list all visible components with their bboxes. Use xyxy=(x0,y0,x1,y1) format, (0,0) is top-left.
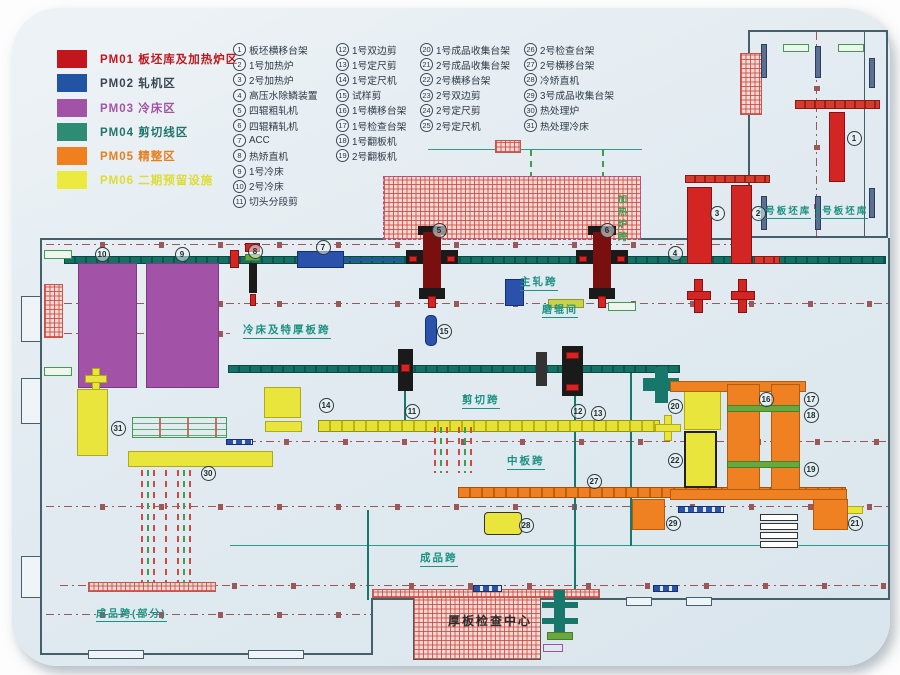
furnace-pusher xyxy=(687,291,711,300)
rail-dash xyxy=(147,470,149,582)
machine-part xyxy=(566,352,579,359)
hot-leveler-part xyxy=(249,263,257,293)
elevation-label-box xyxy=(783,44,809,52)
roller-table-hatched xyxy=(88,582,216,592)
rail-dash xyxy=(458,427,460,473)
lifter-base xyxy=(547,632,573,640)
equipment-marker-6: 6 xyxy=(600,223,615,238)
bay-label: 厚板检查中心 xyxy=(448,615,532,628)
equipment-marker-18: 18 xyxy=(804,408,819,423)
equipment-marker-10: 10 xyxy=(95,247,110,262)
equipment-marker-13: 13 xyxy=(591,406,606,421)
elevation-label-box xyxy=(44,250,72,259)
slab-transfer-rack xyxy=(829,112,845,182)
equipment-marker-20: 20 xyxy=(668,399,683,414)
machine-part xyxy=(617,256,625,262)
rail-dash xyxy=(440,427,442,473)
dashed-line xyxy=(530,150,532,178)
bay-label: 磨辊间 xyxy=(542,305,578,318)
machine-part xyxy=(423,232,441,294)
equipment-marker-28: 28 xyxy=(519,518,534,533)
roller-segment xyxy=(226,439,253,445)
machine-part xyxy=(401,364,410,372)
scanned-page: PM01 板坯库及加热炉区PM02 轧机区PM03 冷床区PM04 剪切线区PM… xyxy=(0,0,900,675)
bay-label: 剪切跨 xyxy=(462,395,500,409)
cooling-bed-1 xyxy=(146,263,219,388)
check-rack xyxy=(132,417,227,438)
roughing-mill-stand xyxy=(405,226,459,308)
rail-dash xyxy=(183,470,185,582)
slab-stack-area xyxy=(44,284,63,338)
equipment-marker-27: 27 xyxy=(587,474,602,489)
cold-leveler xyxy=(484,512,522,535)
equipment-marker-1: 1 xyxy=(847,131,862,146)
lifter-machine xyxy=(542,602,578,608)
heat-treat-furnace xyxy=(128,451,273,467)
bay-label: 冷床及特厚板跨 xyxy=(243,325,331,339)
product-collecting-rack-2 xyxy=(684,431,717,488)
equipment-marker-7: 7 xyxy=(316,240,331,255)
equipment-marker-11: 11 xyxy=(405,404,420,419)
lifter-machine xyxy=(542,618,578,624)
equipment-marker-19: 19 xyxy=(804,462,819,477)
inspection-rack-2 xyxy=(771,384,800,490)
hot-leveler-part xyxy=(250,294,256,306)
equipment-marker-14: 14 xyxy=(319,398,334,413)
cut-to-length-shear xyxy=(536,352,547,386)
transfer-cross-yellow xyxy=(85,375,107,383)
machine-part xyxy=(447,256,455,262)
door-notch xyxy=(686,597,712,606)
elevation-label-box xyxy=(838,44,864,52)
elevation-label-box xyxy=(44,367,72,376)
rail-dash xyxy=(470,427,472,473)
machine-part xyxy=(409,256,417,262)
marker-box xyxy=(543,644,563,652)
roller-segment xyxy=(473,585,502,592)
crane-column xyxy=(869,188,875,218)
centerline xyxy=(46,504,888,510)
rail-dash xyxy=(434,427,436,473)
plant-diagram: 冷床及特厚板跨主轧跨磨辊间加热炉跨2号板坯库1号板坯库剪切跨中板跨成品跨成品跨(… xyxy=(0,0,900,675)
bay-label: 1号板坯库 xyxy=(815,207,868,219)
annex-room xyxy=(21,296,41,342)
slab-stack-area xyxy=(495,140,521,153)
bay-label: 中板跨 xyxy=(507,456,545,470)
bay-label: 成品跨 xyxy=(420,553,458,567)
bay-label: 成品跨(部分) xyxy=(96,609,167,622)
reheating-furnace-2 xyxy=(687,187,712,264)
furnace-pusher xyxy=(731,291,755,300)
roller-segment xyxy=(653,585,678,592)
equipment-marker-17: 17 xyxy=(804,392,819,407)
plate-stack xyxy=(760,532,798,539)
furnace-charging-rollers xyxy=(754,256,780,264)
heat-treat-cooling-bed xyxy=(77,389,108,456)
door-notch xyxy=(88,650,144,659)
equipment-marker-9: 9 xyxy=(175,247,190,262)
dashed-line xyxy=(602,150,604,178)
equipment-marker-21: 21 xyxy=(848,516,863,531)
equipment-marker-3: 3 xyxy=(710,206,725,221)
equipment-marker-12: 12 xyxy=(571,404,586,419)
door-notch xyxy=(248,650,304,659)
rail-dash xyxy=(177,470,179,582)
rail-dash xyxy=(165,470,167,582)
shear-line-rollers xyxy=(228,365,680,373)
edger-unit xyxy=(230,250,239,268)
bay-label: 加热炉跨 xyxy=(615,194,625,244)
equipment-marker-8: 8 xyxy=(248,244,263,259)
rail-dash xyxy=(153,470,155,582)
machine-part xyxy=(593,232,611,294)
equipment-marker-29: 29 xyxy=(666,516,681,531)
plate-stack xyxy=(760,523,798,530)
bay-boundary-line xyxy=(428,149,642,150)
product-collecting-rack-1 xyxy=(684,387,721,430)
collecting-rack xyxy=(813,499,848,530)
equipment-marker-22: 22 xyxy=(668,453,683,468)
equipment-marker-15: 15 xyxy=(437,324,452,339)
equipment-marker-31: 31 xyxy=(111,421,126,436)
machine-part xyxy=(566,384,579,391)
annex-room xyxy=(21,378,41,424)
equipment-marker-4: 4 xyxy=(668,246,683,261)
slab-stack-area xyxy=(740,53,762,115)
crane-column xyxy=(815,46,821,78)
machine-part xyxy=(598,296,606,308)
phase2-roller-line xyxy=(318,420,660,432)
wall-segment xyxy=(371,598,373,655)
equipment-marker-16: 16 xyxy=(759,392,774,407)
door-notch xyxy=(626,597,652,606)
roller-segment xyxy=(678,506,724,513)
slab-handling-rollers xyxy=(795,100,880,109)
plate-stack xyxy=(760,514,798,521)
rail-dash xyxy=(141,470,143,582)
rail-dash xyxy=(464,427,466,473)
annex-room xyxy=(21,556,41,598)
elevation-label-box xyxy=(608,302,636,311)
crane-column xyxy=(761,44,767,78)
machine-part xyxy=(428,296,436,308)
wall-segment xyxy=(888,238,890,600)
acc-water-line xyxy=(344,258,402,261)
equipment-marker-2: 2 xyxy=(751,206,766,221)
turnover-strip xyxy=(727,461,800,468)
equipment-marker-5: 5 xyxy=(432,223,447,238)
plate-stack xyxy=(760,541,798,548)
transfer-line xyxy=(367,510,369,600)
phase2-rack xyxy=(264,387,301,418)
phase2-rack xyxy=(265,421,302,432)
crane-column xyxy=(869,58,875,88)
cooling-bed-2 xyxy=(78,263,137,388)
centerline xyxy=(46,242,748,248)
transfer-cross-yellow xyxy=(655,424,681,432)
machine-part xyxy=(579,256,587,262)
rail-dash xyxy=(189,470,191,582)
furnace-top-rollers xyxy=(685,175,770,183)
collecting-rack xyxy=(632,499,665,530)
rail-dash xyxy=(446,427,448,473)
sample-shear xyxy=(425,315,437,346)
centerline xyxy=(46,612,371,618)
bay-label: 主轧跨 xyxy=(520,277,558,291)
reheating-furnace-1 xyxy=(731,185,752,264)
equipment-marker-30: 30 xyxy=(201,466,216,481)
lifter-machine xyxy=(554,590,565,638)
bay-label: 2号板坯库 xyxy=(758,207,811,219)
inspection-rack-1 xyxy=(727,384,760,490)
